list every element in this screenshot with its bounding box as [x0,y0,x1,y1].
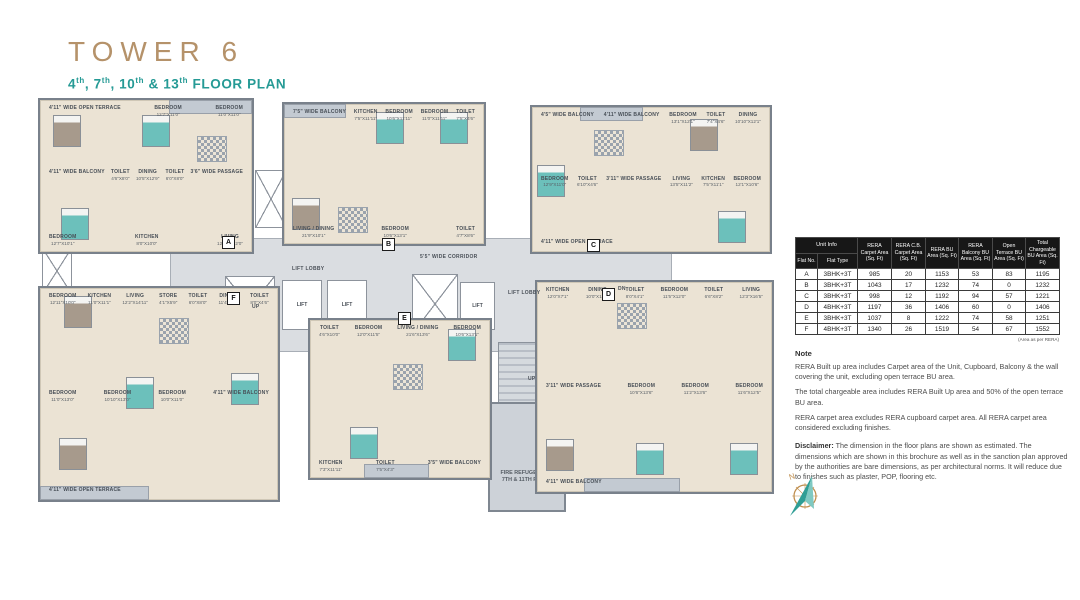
corridor-label: 5'5" WIDE CORRIDOR [420,254,478,260]
notes-section: Note RERA Built up area includes Carpet … [795,349,1069,487]
room-dimensions: 6'10"X4'6" [577,182,598,187]
room-label: BEDROOM13'1"X12'1" [668,113,698,124]
table-cell: 0 [993,302,1026,313]
room-label: KITCHEN7'3"X11'11" [318,461,344,472]
table-cell: 74 [959,313,993,324]
table-cell: 1192 [926,291,959,302]
room-dimensions: 7'5"X11'11" [354,116,378,121]
note-paragraph: RERA Built up area includes Carpet area … [795,362,1069,382]
room-name: BEDROOM [669,113,697,119]
room-label: 4'11" WIDE OPEN TERRACE [48,488,122,494]
table-cell: 1519 [926,324,959,335]
stair-up-label: UP [252,304,260,310]
room-label: BEDROOM12'0"X11'5" [354,326,384,337]
room-name: BEDROOM [154,106,182,112]
unit-marker-c: C [587,239,600,252]
room-label: KITCHEN11'0"X11'1" [87,294,113,305]
unit-info-table: Unit Info RERA Carpet Area (Sq. Ft) RERA… [795,237,1059,342]
room-name: TOILET [376,461,395,467]
table-cell: 1406 [1026,302,1060,313]
room-name: TOILET [456,227,475,233]
room-label: 4'11" WIDE OPEN TERRACE [48,106,122,117]
col-header-cb-carpet: RERA C.B. Carpet Area (Sq. Ft) [892,238,926,269]
table-cell: 998 [858,291,892,302]
unit-room-labels: 4'11" WIDE OPEN TERRACEBEDROOM12'7"X11'0… [48,106,244,246]
room-label: 3'6" WIDE PASSAGE [190,170,244,181]
col-header-unit-info: Unit Info [796,238,858,254]
table-cell: 3BHK+3T [818,269,858,280]
table-row: F4BHK+3T134026151954671552 [796,324,1060,335]
table-cell: 1232 [1026,280,1060,291]
room-name: BEDROOM [421,110,449,116]
unit-room-labels: TOILET4'6"X10'0"BEDROOM12'0"X11'5"LIVING… [318,326,482,472]
room-label: KITCHEN8'0"X10'0" [134,235,160,246]
table-cell: 12 [892,291,926,302]
room-dimensions: 11'5"X12'0" [661,294,689,299]
table-cell: 54 [959,324,993,335]
room-name: LIVING [740,288,763,294]
room-name: 3'5" WIDE BALCONY [428,461,481,467]
table-cell: 3BHK+3T [818,313,858,324]
table-cell: 74 [959,280,993,291]
room-dimensions: 11'6"X12'5" [735,390,763,395]
room-label: TOILET6'0"X8'0" [165,170,186,181]
room-dimensions: 8'0"X4'1" [626,294,645,299]
room-label: 4'5" WIDE BALCONY [540,113,595,124]
room-label: BEDROOM12'9"X11'0" [540,177,570,188]
table-row: B3BHK+3T10431712327401232 [796,280,1060,291]
table-cell: 58 [993,313,1026,324]
room-label: LIVING / DINING21'9"X10'1" [292,227,335,238]
table-cell: 1340 [858,324,892,335]
room-dimensions: 6'0"X8'0" [166,176,185,181]
room-label: BEDROOM10'6"X13'1" [452,326,482,337]
room-name: TOILET [188,294,207,300]
room-name: 3'11" WIDE PASSAGE [546,384,601,390]
unit-room-labels: 4'5" WIDE BALCONY4'11" WIDE BALCONYBEDRO… [540,113,762,246]
page-title: TOWER 6 [68,36,286,68]
col-header-flat-type: Flat Type [818,253,858,268]
room-dimensions: 12'9"X11'0" [541,182,569,187]
lift-lobby-label: LIFT LOBBY [508,290,540,296]
room-name: DINING [735,113,761,119]
room-label: 4'11" WIDE OPEN TERRACE [540,240,614,246]
table-cell: 83 [993,269,1026,280]
room-label: BEDROOM11'5"X12'0" [660,288,690,299]
room-label: LIVING13'5"X11'2" [669,177,694,188]
room-name: 4'11" WIDE BALCONY [49,170,105,176]
unit-b: 7'5" WIDE BALCONYKITCHEN7'5"X11'11"BEDRO… [282,102,486,246]
room-dimensions: 10'10"X13'0" [104,397,132,402]
table-cell: 17 [892,280,926,291]
room-label: TOILET4'6"X8'0" [110,170,131,181]
table-cell: 3BHK+3T [818,291,858,302]
room-label: TOILET6'6"X8'2" [703,288,724,299]
header: TOWER 6 4th, 7th, 10th & 13th FLOOR PLAN [68,36,286,92]
room-name: KITCHEN [354,110,378,116]
room-dimensions: 10'5"X12'9" [136,176,159,181]
room-name: 3'6" WIDE PASSAGE [191,170,243,176]
room-dimensions: 11'2"X13'6" [682,390,710,395]
unit-table-body: A3BHK+3T98520115353831195B3BHK+3T1043171… [796,269,1060,335]
room-dimensions: 21'6"X13'6" [397,332,438,337]
room-label: 3'11" WIDE PASSAGE [605,177,662,188]
table-cell: D [796,302,818,313]
room-name: BEDROOM [381,227,409,233]
room-name: TOILET [626,288,645,294]
note-title: Note [795,349,1069,358]
table-cell: 1153 [926,269,959,280]
room-label: 7'5" WIDE BALCONY [292,110,347,121]
room-label: BEDROOM12'11"X10'0" [48,294,78,305]
table-row: A3BHK+3T98520115353831195 [796,269,1060,280]
table-cell: 67 [993,324,1026,335]
table-cell: 1552 [1026,324,1060,335]
room-dimensions: 7'5"X4'3" [376,467,395,472]
room-dimensions: 8'0"X10'0" [135,241,159,246]
table-cell: 8 [892,313,926,324]
room-label: BEDROOM12'7"X10'1" [48,235,78,246]
room-dimensions: 11'0"X11'0" [215,112,243,117]
room-dimensions: 21'9"X10'1" [293,233,334,238]
room-label: DINING10'5"X12'9" [135,170,160,181]
room-name: LIVING / DINING [397,326,438,332]
room-label: LIVING12'2"X14'11" [121,294,149,305]
col-header-rera-carpet: RERA Carpet Area (Sq. Ft) [858,238,892,269]
room-dimensions: 12'0"X11'5" [355,332,383,337]
table-cell: 1195 [1026,269,1060,280]
room-dimensions: 4'1"X5'9" [159,300,177,305]
room-dimensions: 12'2"X14'11" [122,300,148,305]
room-dimensions: 11'0"X11'1" [88,300,112,305]
room-label: 3'5" WIDE BALCONY [427,461,482,472]
room-label: TOILET6'0"X8'0" [187,294,208,305]
room-label: 3'11" WIDE PASSAGE [545,384,602,395]
room-label: KITCHEN7'5"X11'11" [353,110,379,121]
table-row: D4BHK+3T11973614066001406 [796,302,1060,313]
room-label: 4'11" WIDE BALCONY [212,391,270,402]
table-cell: 57 [993,291,1026,302]
room-name: 4'11" WIDE BALCONY [213,391,269,397]
room-label: DINING10'10"X12'1" [734,113,762,124]
room-label: TOILET7'4"X4'6" [705,113,726,124]
table-cell: 985 [858,269,892,280]
room-name: KITCHEN [88,294,112,300]
room-label: BEDROOM11'6"X12'5" [734,384,764,395]
room-dimensions: 4'6"X10'0" [319,332,340,337]
room-dimensions: 12'11"X10'0" [49,300,77,305]
room-name: 4'11" WIDE BALCONY [546,480,602,486]
unit-room-labels: BEDROOM12'11"X10'0"KITCHEN11'0"X11'1"LIV… [48,294,270,494]
table-cell: 1221 [1026,291,1060,302]
table-cell: 26 [892,324,926,335]
room-label: 4'11" WIDE BALCONY [603,113,661,124]
room-name: 4'11" WIDE BALCONY [604,113,660,119]
room-label: TOILET4'7"X8'6" [455,227,476,238]
room-label: LIVING / DINING21'6"X13'6" [396,326,439,337]
room-label: TOILET8'0"X4'1" [625,288,646,299]
room-name: TOILET [456,110,475,116]
room-name: 4'11" WIDE OPEN TERRACE [49,106,121,112]
table-cell: 0 [993,280,1026,291]
col-header-total-chargeable: Total Chargeable BU Area (Sq. Ft) [1026,238,1060,269]
col-header-flat-no: Flat No. [796,253,818,268]
room-name: TOILET [319,326,340,332]
room-dimensions: 4'6"X8'0" [111,176,130,181]
table-cell: A [796,269,818,280]
room-name: BEDROOM [355,326,383,332]
note-paragraph: The total chargeable area includes RERA … [795,387,1069,407]
room-name: KITCHEN [319,461,343,467]
room-label: BEDROOM11'2"X13'6" [681,384,711,395]
unit-room-labels: 7'5" WIDE BALCONYKITCHEN7'5"X11'11"BEDRO… [292,110,476,238]
table-cell: 36 [892,302,926,313]
table-cell: E [796,313,818,324]
room-dimensions: 11'0"X11'11" [421,116,449,121]
room-label: BEDROOM12'7"X11'0" [153,106,183,117]
table-cell: 4BHK+3T [818,302,858,313]
table-footnote: (Area as per RERA) [795,337,1059,342]
room-dimensions: 6'0"X8'0" [188,300,207,305]
room-name: BEDROOM [661,288,689,294]
room-name: 4'11" WIDE OPEN TERRACE [49,488,121,494]
room-label: 4'11" WIDE BALCONY [545,480,603,486]
room-name: TOILET [250,294,269,300]
room-name: 4'5" WIDE BALCONY [541,113,594,119]
unit-room-labels: KITCHEN12'0"X7'1"DINING10'0"X13'4"TOILET… [545,288,764,486]
room-dimensions: 10'6"X13'6" [628,390,656,395]
room-dimensions: 12'7"X11'0" [154,112,182,117]
room-label: TOILET6'10"X4'6" [576,177,599,188]
room-name: LIVING / DINING [293,227,334,233]
room-label: BEDROOM10'6"X11'11" [384,110,414,121]
room-label: TOILET4'6"X10'0" [318,326,341,337]
compass-n-label: N [788,471,796,481]
unit-f: BEDROOM12'11"X10'0"KITCHEN11'0"X11'1"LIV… [38,286,280,502]
brochure-page: TOWER 6 4th, 7th, 10th & 13th FLOOR PLAN… [0,0,1080,600]
room-name: BEDROOM [49,294,77,300]
floor-plan: 5'5" WIDE CORRIDOR LIFT LOBBY LIFT LOBBY… [30,90,775,518]
room-dimensions: 13'5"X11'2" [670,182,693,187]
room-name: KITCHEN [546,288,570,294]
table-cell: 60 [959,302,993,313]
room-dimensions: 10'6"X13'1" [453,332,481,337]
room-dimensions: 12'0"X7'1" [546,294,570,299]
unit-a: 4'11" WIDE OPEN TERRACEBEDROOM12'7"X11'0… [38,98,254,254]
room-label: TOILET7'5"X4'6" [455,110,476,121]
room-dimensions: 10'0"X11'0" [158,397,186,402]
unit-d: KITCHEN12'0"X7'1"DINING10'0"X13'4"TOILET… [535,280,774,494]
table-cell: 3BHK+3T [818,280,858,291]
disclaimer: Disclaimer: The dimension in the floor p… [795,441,1069,482]
table-cell: 1043 [858,280,892,291]
room-label: BEDROOM10'10"X13'0" [103,391,133,402]
note-paragraph: RERA carpet area excludes RERA cupboard … [795,413,1069,433]
col-header-open-terrace-bu: Open Terrace BU Area (Sq. Ft) [993,238,1026,269]
table-row: E3BHK+3T10378122274581251 [796,313,1060,324]
room-label: BEDROOM10'0"X11'0" [157,391,187,402]
room-name: 3'11" WIDE PASSAGE [606,177,661,183]
room-dimensions: 4'7"X8'6" [456,233,475,238]
unit-marker-f: F [227,292,240,305]
stair-dn-label: DN [618,286,626,292]
room-label: STORE4'1"X5'9" [158,294,178,305]
table-cell: 4BHK+3T [818,324,858,335]
room-label: KITCHEN12'0"X7'1" [545,288,571,299]
room-name: BEDROOM [453,326,481,332]
table-cell: 1406 [926,302,959,313]
room-label: BEDROOM11'0"X11'11" [420,110,450,121]
room-name: BEDROOM [215,106,243,112]
table-cell: 94 [959,291,993,302]
room-name: STORE [159,294,177,300]
room-label: KITCHEN7'5"X11'1" [700,177,726,188]
room-label: BEDROOM11'0"X13'0" [48,391,78,402]
room-dimensions: 7'4"X4'6" [706,119,725,124]
table-cell: F [796,324,818,335]
room-dimensions: 7'5"X4'6" [456,116,475,121]
room-name: KITCHEN [135,235,159,241]
room-dimensions: 11'0"X13'0" [49,397,77,402]
disclaimer-text: The dimension in the floor plans are sho… [795,441,1067,481]
room-dimensions: 7'3"X11'11" [319,467,343,472]
room-label: BEDROOM10'6"X13'1" [380,227,410,238]
unit-e: TOILET4'6"X10'0"BEDROOM12'0"X11'5"LIVING… [308,318,492,480]
table-cell: 20 [892,269,926,280]
compass-north-icon: N [782,468,826,525]
unit-marker-e: E [398,312,411,325]
room-label: BEDROOM12'1"X10'6" [732,177,762,188]
lift-lobby-label: LIFT LOBBY [292,266,324,272]
room-label: 4'11" WIDE BALCONY [48,170,106,181]
room-name: BEDROOM [385,110,413,116]
room-dimensions: 6'6"X8'2" [704,294,723,299]
table-cell: 1232 [926,280,959,291]
table-cell: 1037 [858,313,892,324]
stair-up-label: UP [528,376,536,382]
table-cell: C [796,291,818,302]
room-name: TOILET [706,113,725,119]
col-header-balcony-bu: RERA Balcony BU Area (Sq. Ft) [959,238,993,269]
room-name: 4'11" WIDE OPEN TERRACE [541,240,613,246]
room-label: TOILET7'5"X4'3" [375,461,396,472]
room-name: TOILET [704,288,723,294]
room-label: BEDROOM11'0"X11'0" [214,106,244,117]
table-cell: 53 [959,269,993,280]
disclaimer-label: Disclaimer: [795,441,834,450]
room-name: 7'5" WIDE BALCONY [293,110,346,116]
room-dimensions: 13'1"X12'1" [669,119,697,124]
room-dimensions: 7'5"X11'1" [701,182,725,187]
table-cell: 1222 [926,313,959,324]
unit-c: 4'5" WIDE BALCONY4'11" WIDE BALCONYBEDRO… [530,105,772,254]
room-label: BEDROOM10'6"X13'6" [627,384,657,395]
unit-marker-d: D [602,288,615,301]
unit-marker-b: B [382,238,395,251]
room-dimensions: 10'6"X11'11" [385,116,413,121]
table-cell: B [796,280,818,291]
room-dimensions: 12'7"X10'1" [49,241,77,246]
room-dimensions: 12'1"X10'6" [733,182,761,187]
table-row: C3BHK+3T99812119294571221 [796,291,1060,302]
unit-marker-a: A [222,236,235,249]
table-cell: 1197 [858,302,892,313]
room-dimensions: 10'10"X12'1" [735,119,761,124]
col-header-bu-area: RERA BU Area (Sq. Ft) [926,238,959,269]
table-cell: 1251 [1026,313,1060,324]
room-label: LIVING12'3"X16'5" [739,288,764,299]
room-dimensions: 12'3"X16'5" [740,294,763,299]
room-name: BEDROOM [49,235,77,241]
